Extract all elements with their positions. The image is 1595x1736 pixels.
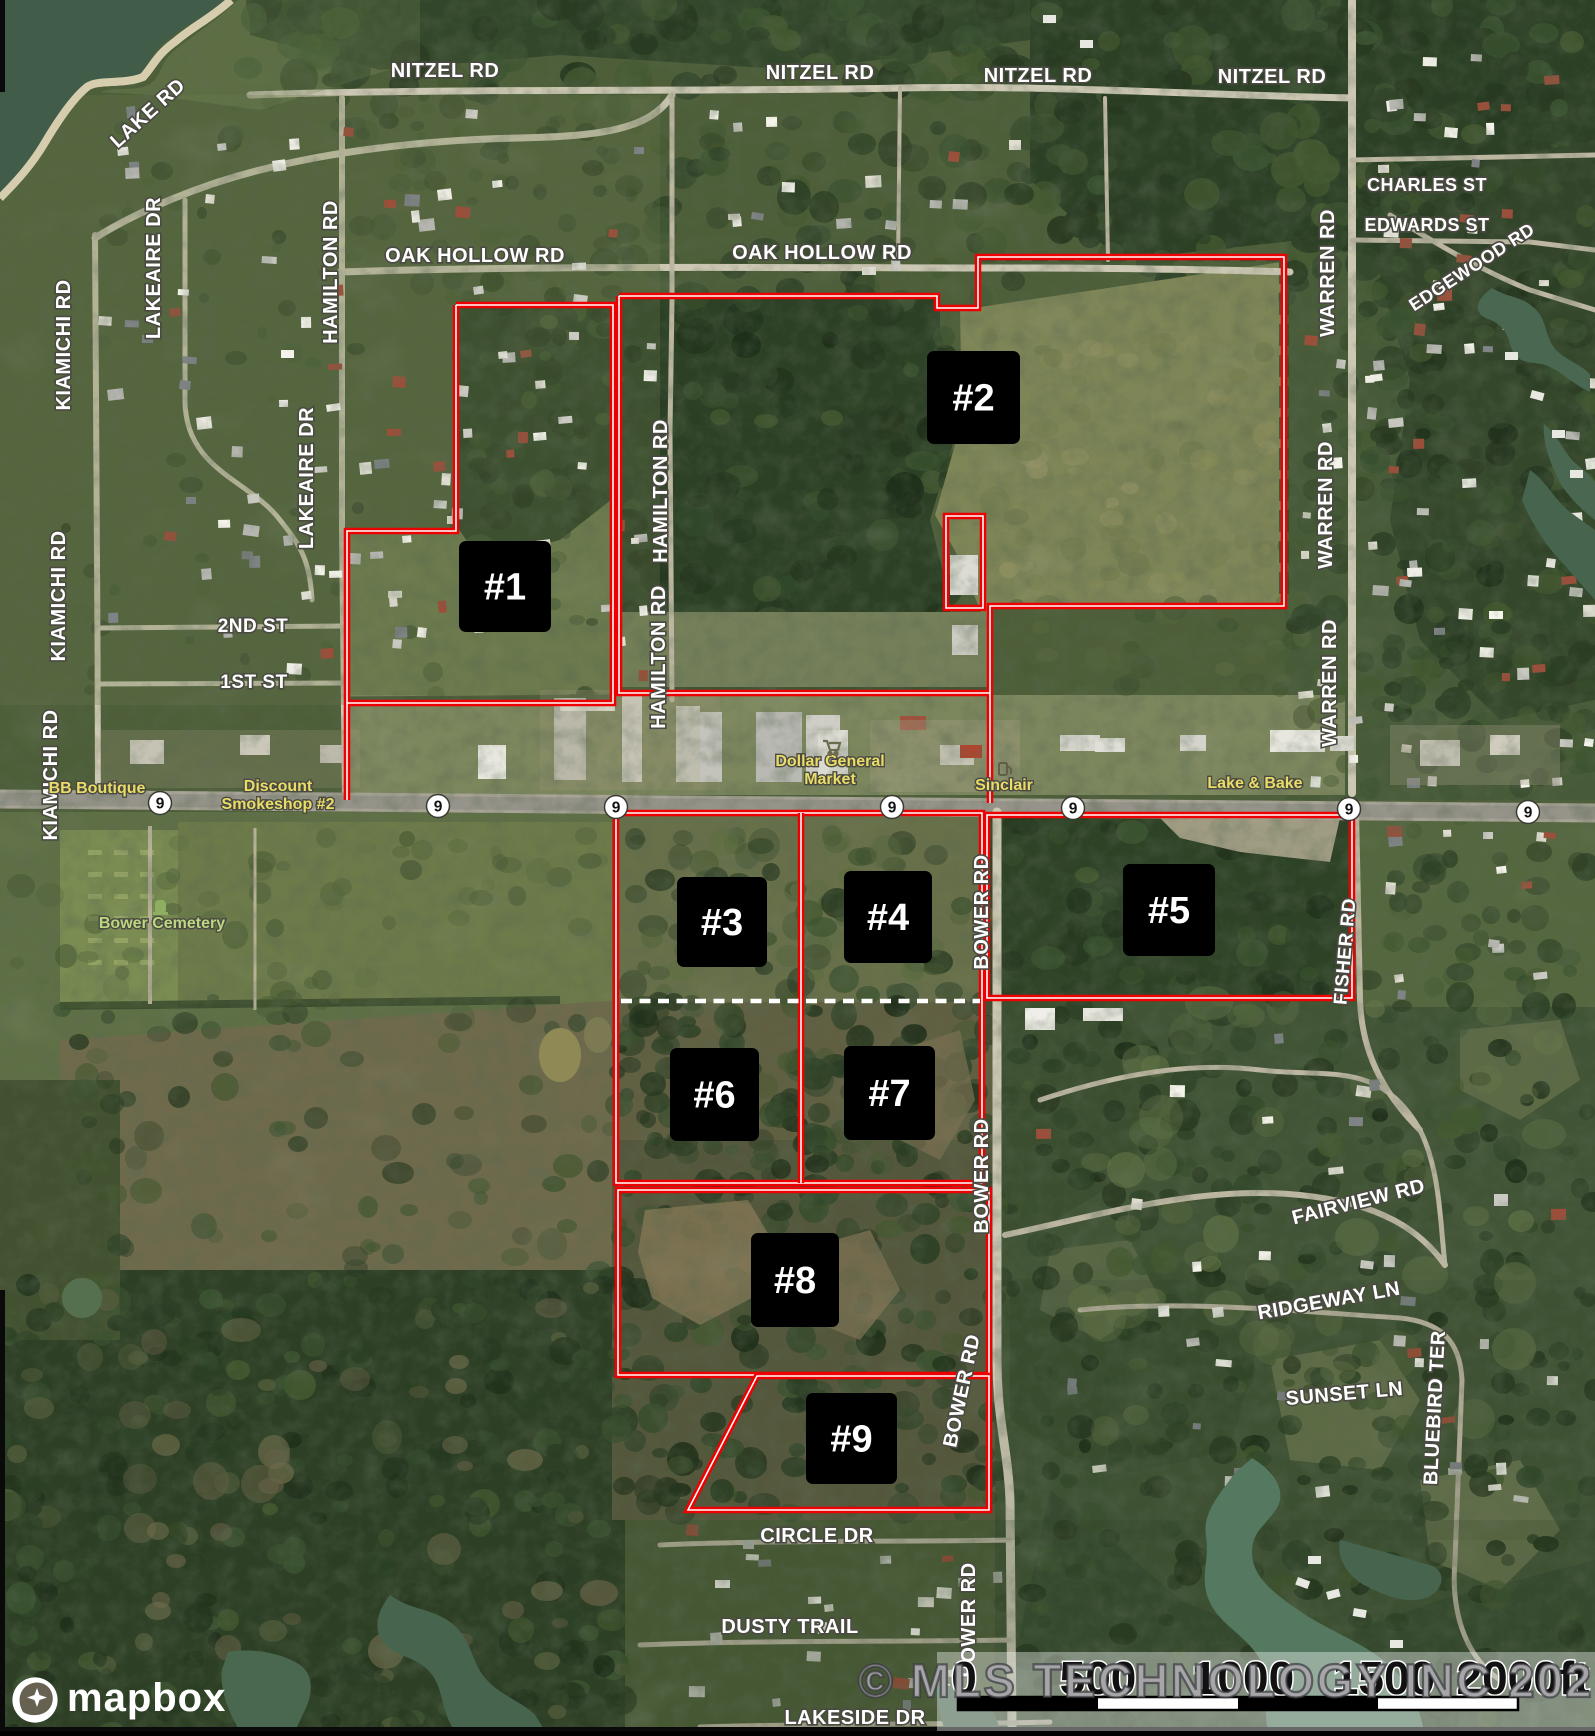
svg-text:#7: #7 <box>868 1073 910 1115</box>
svg-text:#8: #8 <box>774 1260 816 1302</box>
svg-text:#4: #4 <box>867 897 909 939</box>
svg-text:BB Boutique: BB Boutique <box>49 780 146 797</box>
svg-text:1ST ST: 1ST ST <box>220 672 287 693</box>
svg-text:NITZEL RD: NITZEL RD <box>391 60 500 82</box>
svg-text:#1: #1 <box>484 567 526 609</box>
svg-text:9: 9 <box>888 800 897 817</box>
svg-text:9: 9 <box>1069 801 1078 818</box>
svg-text:CIRCLE DR: CIRCLE DR <box>760 1525 873 1547</box>
svg-text:KIAMICHI RD: KIAMICHI RD <box>40 709 62 840</box>
svg-text:NITZEL RD: NITZEL RD <box>984 65 1093 87</box>
svg-text:BOWER RD: BOWER RD <box>971 854 993 969</box>
svg-text:DUSTY TRAIL: DUSTY TRAIL <box>721 1616 858 1638</box>
svg-text:9: 9 <box>612 800 621 817</box>
svg-text:WARREN RD: WARREN RD <box>1315 441 1337 569</box>
svg-text:#6: #6 <box>693 1075 735 1117</box>
svg-text:KIAMICHI RD: KIAMICHI RD <box>48 530 70 661</box>
svg-text:Market: Market <box>804 771 856 788</box>
svg-text:LAKEAIRE DR: LAKEAIRE DR <box>296 407 318 549</box>
svg-text:Smokeshop #2: Smokeshop #2 <box>222 796 335 813</box>
svg-text:#5: #5 <box>1148 890 1190 932</box>
svg-text:LAKESIDE DR: LAKESIDE DR <box>784 1707 925 1729</box>
svg-text:Lake & Bake: Lake & Bake <box>1207 775 1302 792</box>
svg-text:Bower Cemetery: Bower Cemetery <box>99 915 225 932</box>
svg-text:NITZEL RD: NITZEL RD <box>766 62 875 84</box>
svg-text:HAMILTON RD: HAMILTON RD <box>650 419 672 563</box>
svg-text:#3: #3 <box>701 902 743 944</box>
svg-text:9: 9 <box>1524 805 1533 822</box>
svg-text:WARREN RD: WARREN RD <box>1319 619 1341 747</box>
svg-text:9: 9 <box>156 796 165 813</box>
svg-text:LAKEAIRE DR: LAKEAIRE DR <box>143 197 165 339</box>
svg-text:EDWARDS ST: EDWARDS ST <box>1364 215 1489 235</box>
svg-text:HAMILTON RD: HAMILTON RD <box>648 585 670 729</box>
svg-text:Sinclair: Sinclair <box>975 777 1033 794</box>
svg-text:KIAMICHI RD: KIAMICHI RD <box>53 279 75 410</box>
svg-text:2ND ST: 2ND ST <box>218 616 289 637</box>
svg-text:Discount: Discount <box>244 778 313 795</box>
svg-text:BOWER RD: BOWER RD <box>971 1118 993 1233</box>
svg-text:© MLS TECHNOLOGY INC 2026: © MLS TECHNOLOGY INC 2026 <box>858 1654 1595 1707</box>
svg-text:mapbox: mapbox <box>67 1676 226 1720</box>
svg-text:#2: #2 <box>952 378 994 420</box>
svg-text:OAK HOLLOW RD: OAK HOLLOW RD <box>732 242 912 264</box>
svg-text:CHARLES ST: CHARLES ST <box>1367 175 1487 195</box>
svg-text:9: 9 <box>1345 802 1354 819</box>
svg-text:#9: #9 <box>830 1419 872 1461</box>
svg-text:HAMILTON RD: HAMILTON RD <box>320 200 342 344</box>
svg-text:OAK HOLLOW RD: OAK HOLLOW RD <box>385 245 565 267</box>
svg-text:9: 9 <box>434 799 443 816</box>
svg-text:NITZEL RD: NITZEL RD <box>1218 66 1327 88</box>
svg-text:WARREN RD: WARREN RD <box>1317 209 1339 337</box>
